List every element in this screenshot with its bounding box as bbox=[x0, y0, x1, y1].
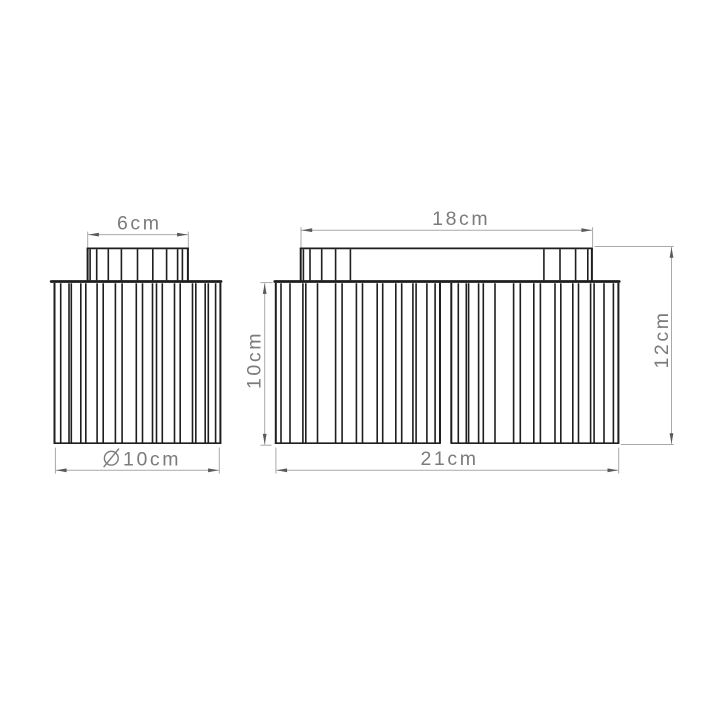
svg-text:10cm: 10cm bbox=[243, 331, 265, 389]
svg-text:10cm: 10cm bbox=[123, 448, 181, 470]
svg-text:6cm: 6cm bbox=[117, 212, 162, 234]
svg-text:21cm: 21cm bbox=[420, 448, 478, 470]
svg-text:12cm: 12cm bbox=[651, 310, 673, 368]
svg-text:18cm: 18cm bbox=[432, 208, 490, 230]
